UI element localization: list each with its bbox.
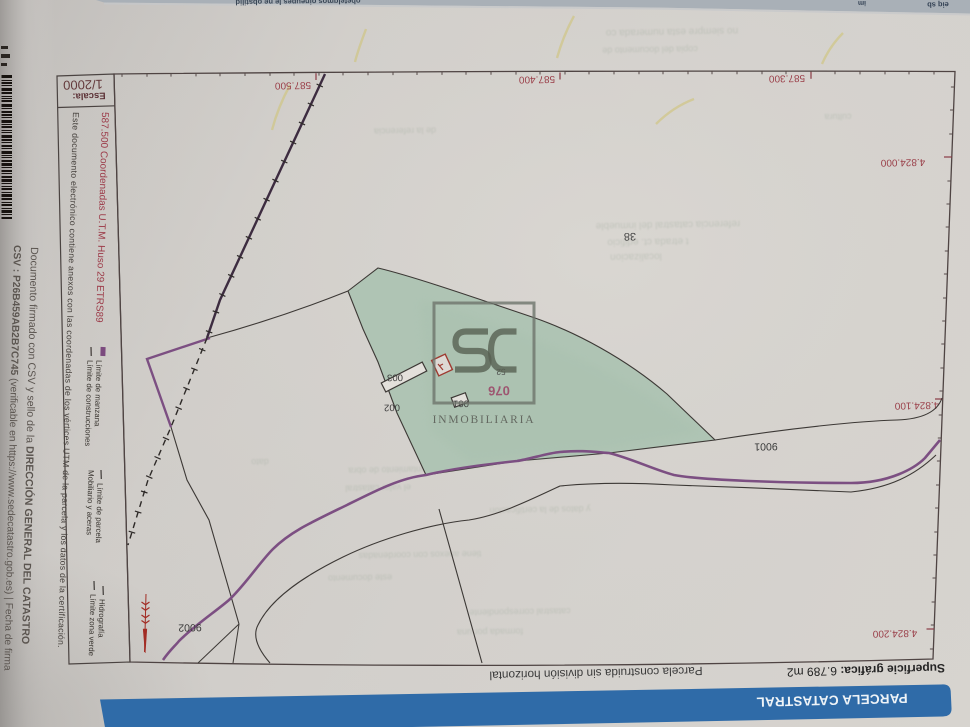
svg-text:076: 076 [488, 383, 510, 398]
svg-text:4.824.000: 4.824.000 [880, 156, 925, 168]
svg-text:003: 003 [387, 371, 403, 382]
svg-text:im: im [858, 0, 866, 6]
svg-text:4.824.100: 4.824.100 [894, 399, 939, 411]
svg-text:002: 002 [384, 401, 400, 412]
svg-text:obetelqmos oineupes le ne obst: obetelqmos oineupes le ne obstilid [235, 0, 361, 7]
svg-text:Escala:: Escala: [72, 90, 106, 102]
svg-text:de la referencia: de la referencia [374, 125, 436, 136]
svg-text:este documento: este documento [328, 572, 392, 583]
svg-text:catastral correspondiente: catastral correspondiente [469, 606, 570, 618]
svg-text:Mobiliario y aceras: Mobiliario y aceras [85, 470, 96, 535]
svg-text:4.824.200: 4.824.200 [872, 627, 917, 639]
svg-text:587.500: 587.500 [274, 79, 311, 91]
svg-text:38: 38 [624, 230, 636, 242]
svg-text:INMOBILIARIA: INMOBILIARIA [433, 414, 536, 426]
svg-text:dato: dato [251, 457, 269, 467]
svg-text:9001: 9001 [754, 440, 778, 452]
svg-text:el valor catastral: el valor catastral [345, 482, 411, 493]
svg-text:587.300: 587.300 [768, 72, 805, 84]
svg-text:t etrada ct. edificio: t etrada ct. edificio [607, 235, 689, 247]
svg-text:eiq sb: eiq sb [927, 0, 949, 9]
svg-text:587.400: 587.400 [518, 73, 555, 85]
svg-text:9002: 9002 [178, 621, 202, 633]
svg-text:localizacion: localizacion [610, 251, 662, 263]
svg-text:no siempre esta numerada co: no siempre esta numerada co [605, 25, 738, 38]
svg-text:Límite zona verde: Límite zona verde [87, 594, 98, 656]
svg-text:cultura: cultura [824, 112, 851, 122]
svg-text:formada por una: formada por una [457, 626, 523, 637]
svg-text:copia del documento de: copia del documento de [602, 44, 698, 56]
